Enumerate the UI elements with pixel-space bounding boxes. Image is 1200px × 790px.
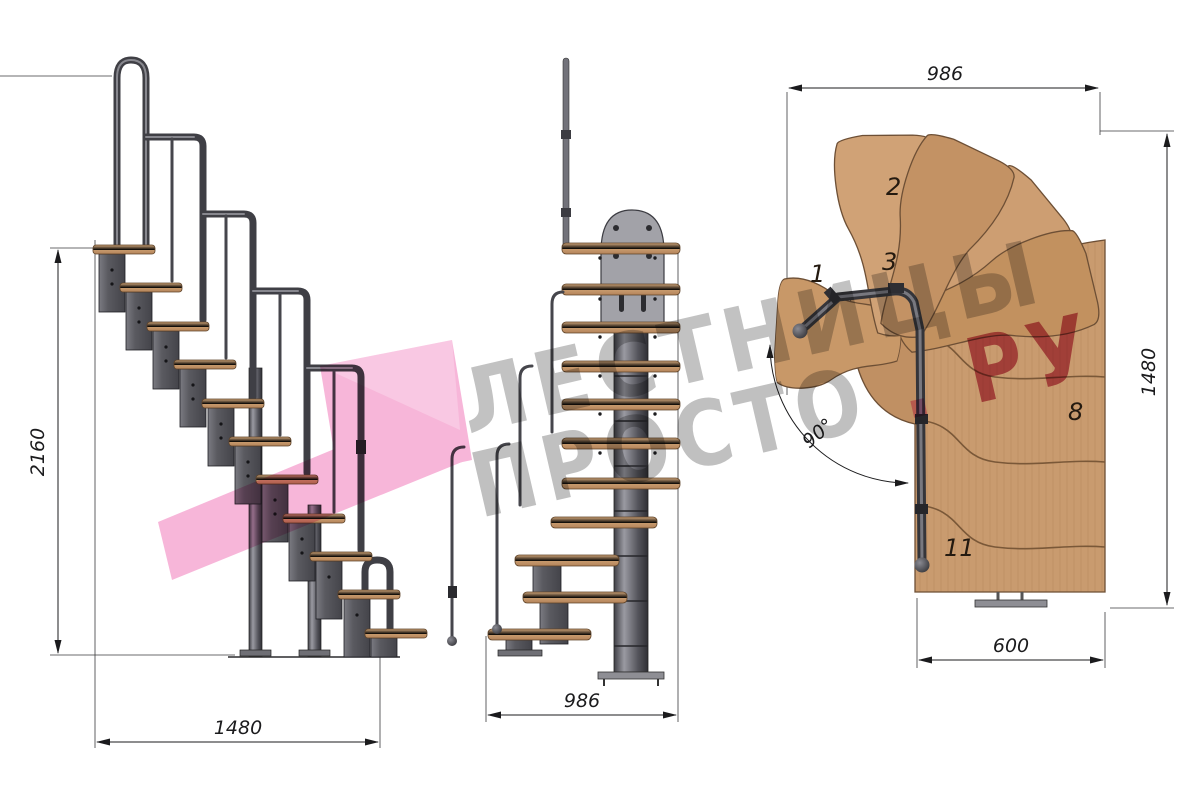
side-height-dim: 2160 xyxy=(27,428,49,476)
plan-depth-dim: 1480 xyxy=(1138,348,1160,396)
plan-exit-dim: 600 xyxy=(993,635,1029,657)
step-label-2: 2 xyxy=(886,173,901,201)
side-length-dim: 1480 xyxy=(214,717,262,739)
watermark-dot: . xyxy=(888,330,947,441)
plan-width-dim: 986 xyxy=(927,63,963,85)
technical-drawing-page: { "side_view": { "height_dim": "2160", "… xyxy=(0,0,1200,790)
step-label-11: 11 xyxy=(944,534,975,562)
staircase-drawing: 2160 1480 xyxy=(0,0,1200,790)
front-width-dim: 986 xyxy=(564,690,600,712)
